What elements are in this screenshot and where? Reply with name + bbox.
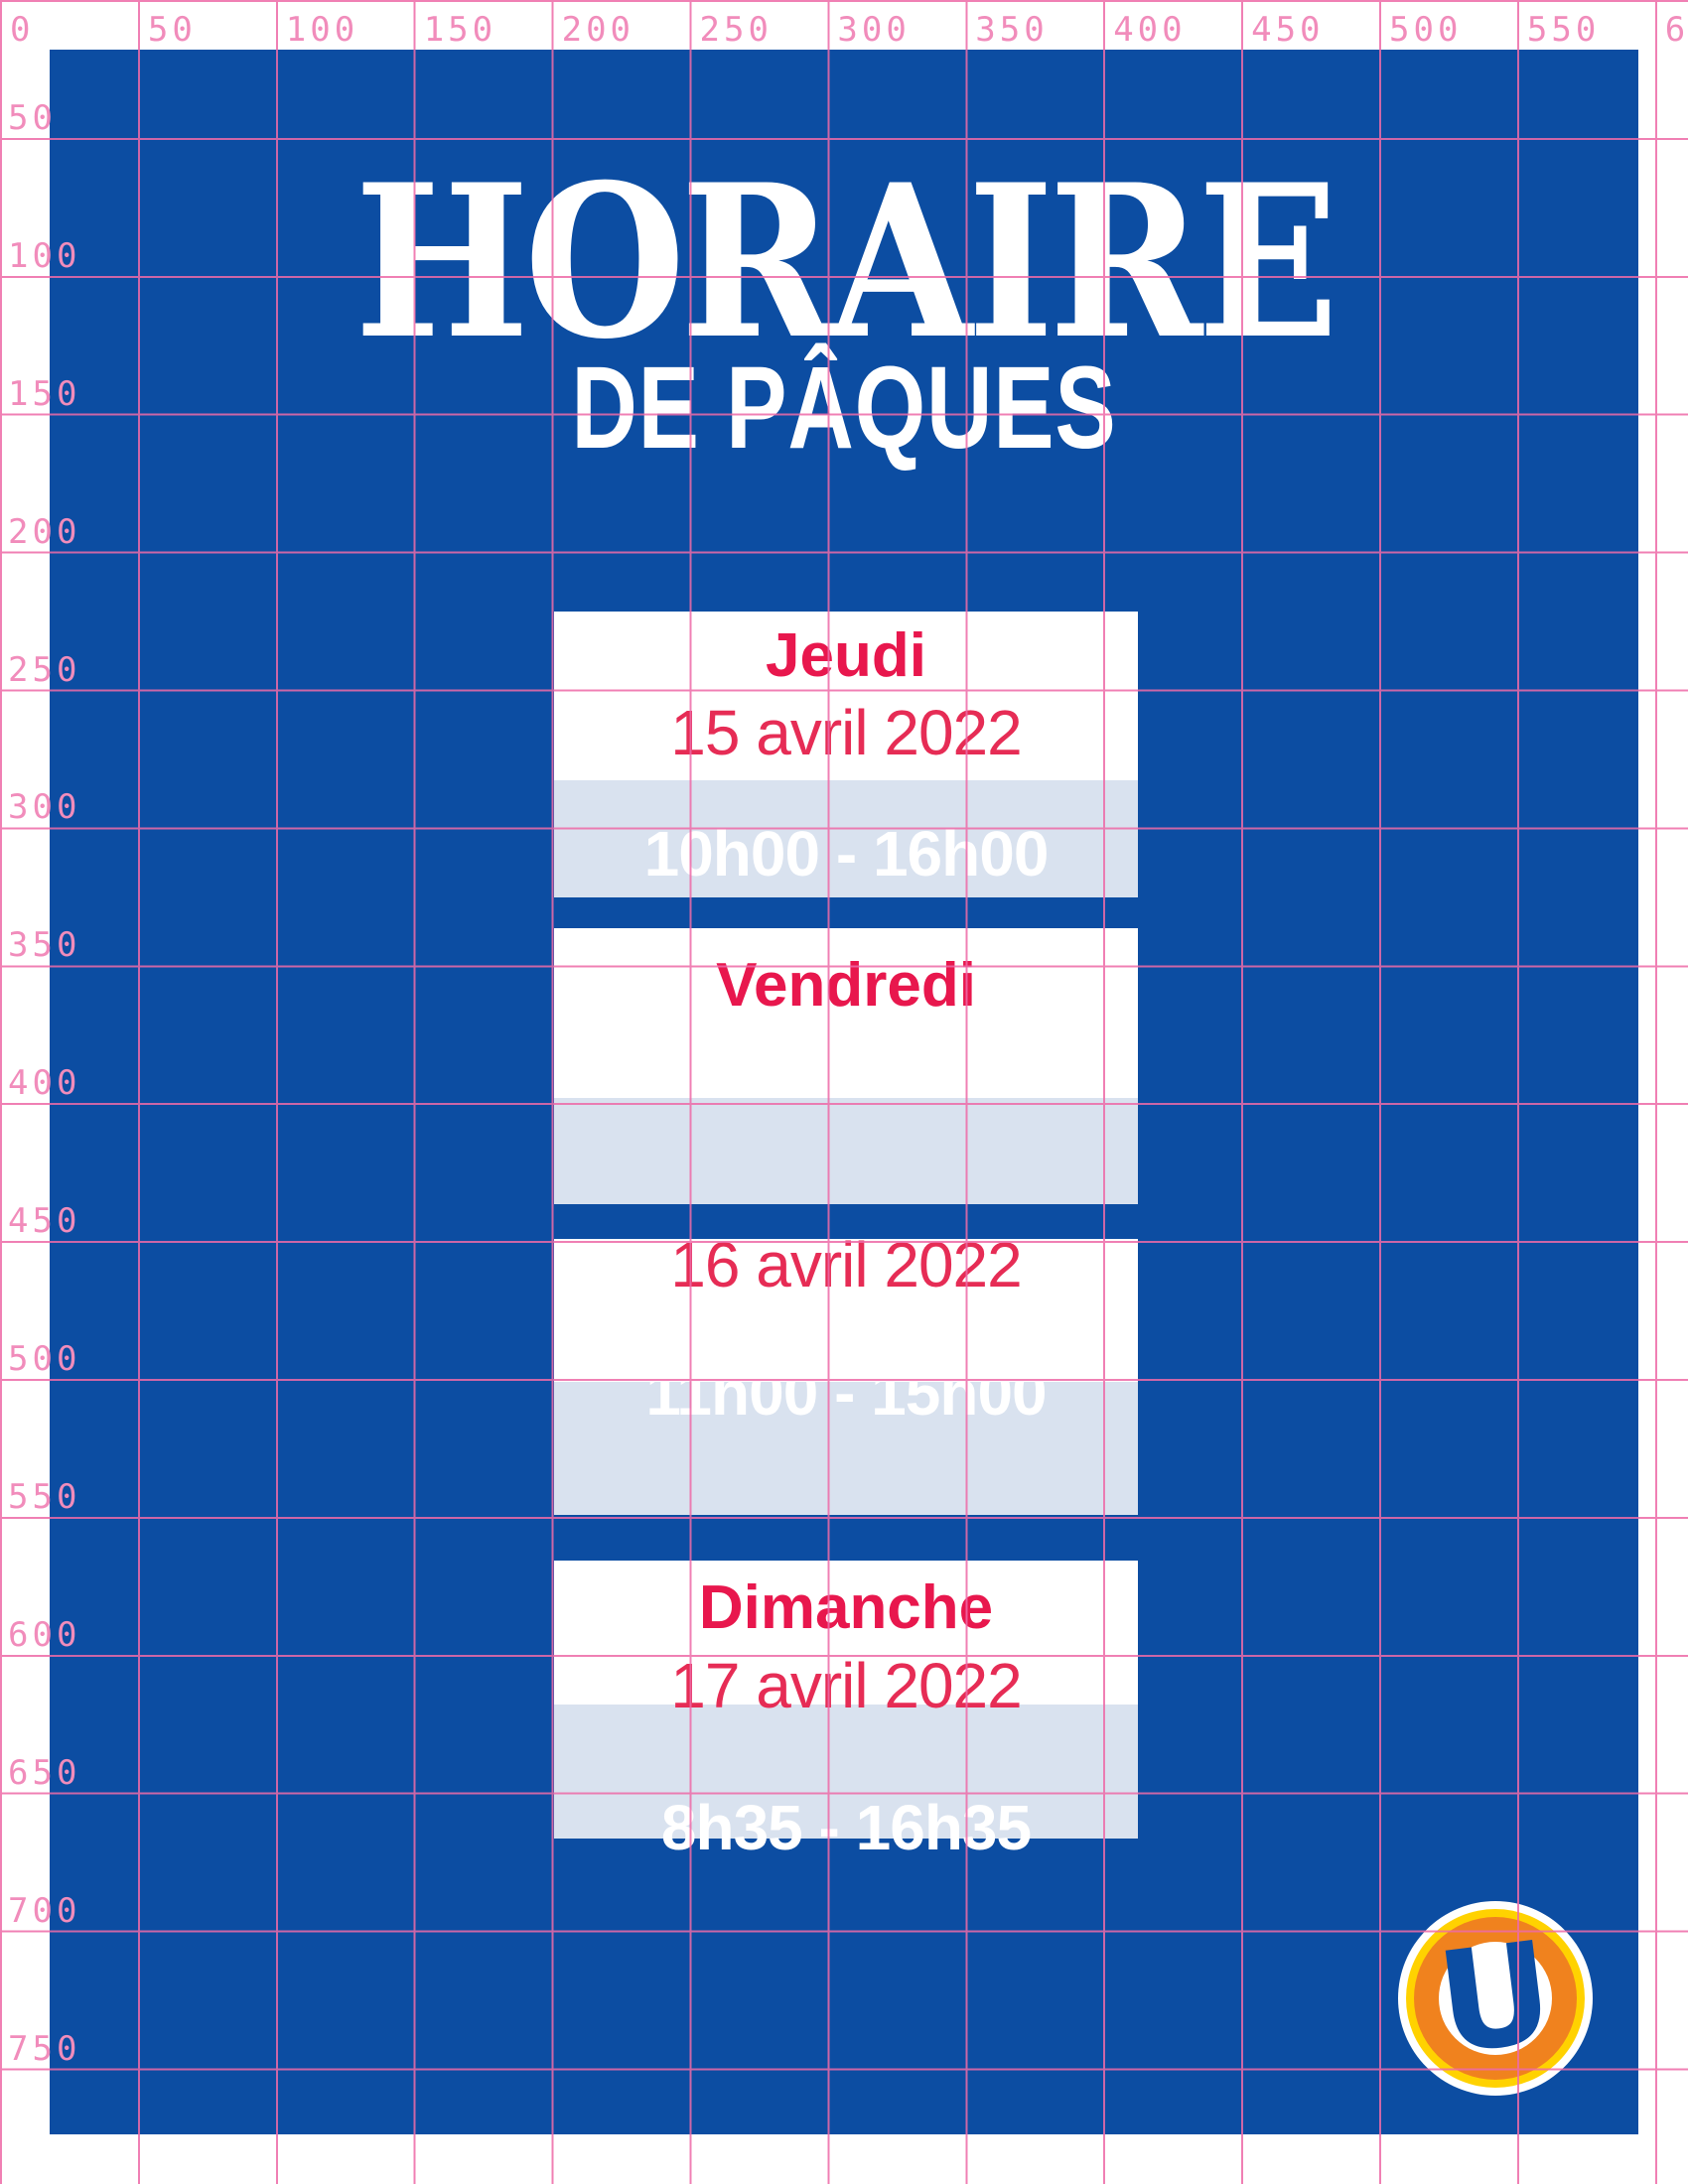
time-label-jeudi: 10h00 - 16h00 [554, 822, 1138, 886]
ruler-label-x-350: 350 [975, 13, 1048, 47]
time-label-dimanche: 8h35 - 16h35 [554, 1796, 1138, 1859]
time-label-vendredi: 11h00 - 15h00 [554, 1382, 1138, 1425]
date-label-jeudi: 15 avril 2022 [554, 701, 1138, 764]
day-label-vendredi: Vendredi [554, 955, 1138, 1017]
time-box-vendredi-empty [554, 1098, 1138, 1204]
date-label-dimanche: 17 avril 2022 [554, 1654, 1138, 1717]
poster-title: HORAIRE [101, 157, 1587, 367]
ruler-label-x-50: 50 [148, 13, 197, 47]
ruler-label-x-400: 400 [1113, 13, 1186, 47]
ruler-label-x-150: 150 [424, 13, 496, 47]
ruler-label-x-0: 0 [10, 13, 34, 47]
date-label-vendredi: 16 avril 2022 [554, 1233, 1138, 1297]
ruler-label-x-500: 500 [1389, 13, 1462, 47]
ruler-label-x-300: 300 [837, 13, 910, 47]
ruler-label-x-200: 200 [562, 13, 634, 47]
u-logo: U [1398, 1901, 1593, 2096]
ruler-label-x-550: 550 [1527, 13, 1600, 47]
day-label-jeudi: Jeudi [554, 625, 1138, 687]
logo-letter: U [1430, 1912, 1562, 2087]
ruler-label-x-250: 250 [700, 13, 773, 47]
poster-subtitle: DE PÂQUES [186, 349, 1502, 467]
design-canvas: HORAIRE DE PÂQUES Jeudi 15 avril 2022 10… [0, 0, 1688, 2184]
ruler-label-x-450: 450 [1251, 13, 1324, 47]
ruler-label-x-600: 600 [1665, 13, 1688, 47]
time-box-vendredi: 11h00 - 15h00 [554, 1382, 1138, 1515]
day-label-dimanche: Dimanche [554, 1577, 1138, 1639]
ruler-label-x-100: 100 [286, 13, 358, 47]
